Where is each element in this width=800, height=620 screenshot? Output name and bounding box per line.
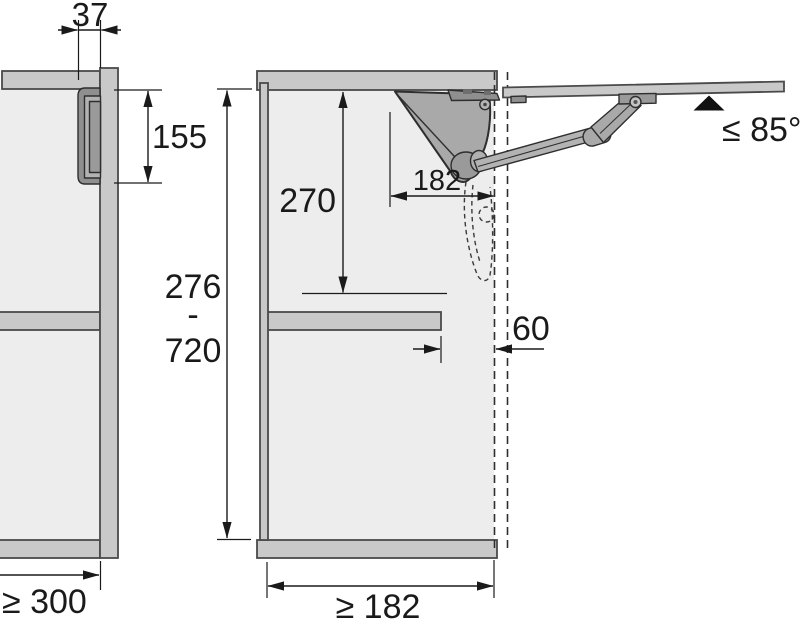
side-cabinet-top-panel	[257, 71, 497, 90]
dimension-182-label: 182	[413, 165, 461, 197]
side-cabinet-back-panel	[260, 83, 268, 540]
front-view: 37 155 ≥ 300	[0, 0, 207, 620]
technical-diagram: 37 155 ≥ 300	[0, 0, 800, 620]
dimension-276-720: 276 - 720	[165, 89, 252, 540]
side-view: ≤ 85° 270 182 60 ≥ 182	[165, 71, 800, 620]
flap-arm-pivot-pin	[634, 100, 638, 104]
dimension-min-182: ≥ 182	[267, 560, 494, 620]
dimension-37-label: 37	[72, 0, 109, 33]
front-cabinet-shelf	[0, 312, 100, 330]
front-cabinet-bottom-panel	[0, 540, 100, 558]
long-arm-seam	[478, 133, 596, 167]
dimension-155-label: 155	[152, 118, 207, 155]
dimension-270-label: 270	[279, 182, 336, 220]
side-cabinet-shelf	[267, 312, 441, 330]
diagram-stage: 37 155 ≥ 300	[0, 0, 800, 620]
front-cabinet-top-panel	[2, 71, 100, 89]
bracket-screw-1	[463, 90, 472, 95]
dimension-155: 155	[114, 90, 207, 183]
opening-angle-annotation: ≤ 85°	[694, 96, 800, 150]
fitting-housing-inner	[90, 102, 101, 173]
dimension-min-300: ≥ 300	[0, 561, 101, 620]
max-angle-label: ≤ 85°	[722, 111, 800, 149]
lever-arms	[474, 97, 641, 173]
flap-height-max-label: 720	[165, 332, 222, 370]
mechanism-top-pivot-pin	[483, 103, 487, 107]
open-flap	[503, 82, 784, 108]
front-view-fitting	[78, 88, 101, 184]
angle-marker-triangle	[694, 96, 725, 111]
flap-hinge-clip	[511, 96, 526, 103]
flap-height-separator: -	[187, 296, 198, 334]
dimension-min-300-label: ≥ 300	[2, 583, 87, 620]
dimension-min-182-label: ≥ 182	[336, 588, 421, 620]
dimension-60-label: 60	[512, 310, 550, 348]
bracket-screw-2	[484, 91, 491, 95]
side-cabinet-bottom-panel	[257, 540, 497, 558]
front-cabinet-side-panel	[100, 68, 118, 558]
